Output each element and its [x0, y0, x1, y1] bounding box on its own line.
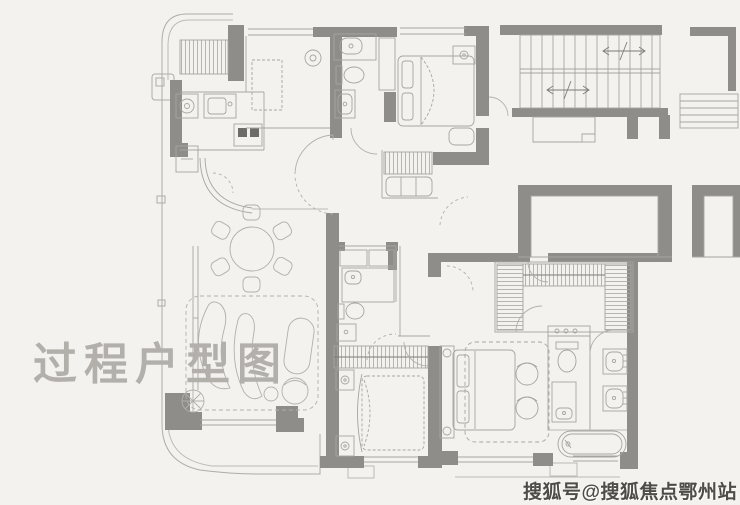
armchair [516, 363, 538, 385]
headboard [358, 374, 363, 452]
dining-table [230, 227, 274, 271]
kitchen-island [252, 60, 282, 110]
second-bedroom-bed [362, 376, 424, 450]
bedroom-bed [398, 56, 474, 126]
dining-area [209, 205, 294, 292]
master-suite [440, 262, 633, 457]
walk-in-closet [495, 262, 633, 332]
loveseat [386, 177, 432, 196]
process-floorplan-watermark: 过程户型图 [33, 328, 288, 392]
master-bedroom [440, 342, 549, 442]
armchair [516, 397, 538, 419]
double-vanity [603, 349, 627, 411]
gas-stove [234, 124, 262, 146]
water-closet [548, 336, 590, 430]
guest-bathroom-shower [342, 268, 394, 302]
bed-bench [449, 128, 474, 145]
light-well [518, 196, 740, 257]
bedroom-bottom [334, 346, 428, 456]
master-bedroom-bed [453, 350, 515, 430]
equipment-platform [180, 40, 228, 74]
kitchen [176, 36, 330, 213]
guest-bathroom-toilet [338, 303, 364, 319]
bedside-table [453, 46, 475, 64]
wardrobe [384, 152, 432, 174]
sohu-source-watermark: 搜狐号@搜狐焦点鄂州站 [523, 477, 737, 504]
floorplan-page: 过程户型图 搜狐号@搜狐焦点鄂州站 [0, 0, 740, 505]
nightstand-ledge [440, 346, 454, 438]
bedroom-rug [465, 342, 549, 442]
dining-chairs [209, 205, 294, 292]
plant [305, 50, 321, 66]
bathtub [558, 431, 626, 457]
floor-lamp [182, 390, 204, 412]
floor-plan-drawing [0, 0, 740, 505]
guest-bathroom [337, 246, 430, 341]
